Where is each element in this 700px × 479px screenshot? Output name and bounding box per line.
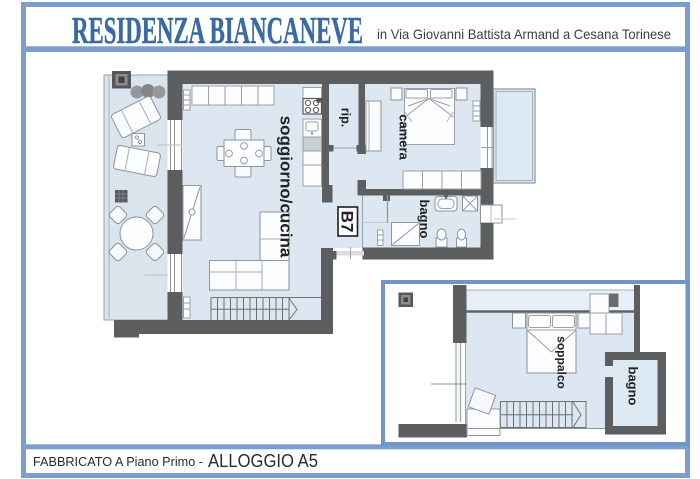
svg-text:bagno: bagno xyxy=(626,367,641,406)
svg-text:RESIDENZA BIANCANEVE: RESIDENZA BIANCANEVE xyxy=(72,10,363,52)
svg-text:ALLOGGIO A5: ALLOGGIO A5 xyxy=(208,451,318,471)
svg-text:camera: camera xyxy=(397,114,412,160)
svg-text:rip.: rip. xyxy=(339,108,353,127)
svg-text:soggiorno/cucina: soggiorno/cucina xyxy=(277,116,296,258)
svg-text:B7: B7 xyxy=(338,211,357,233)
svg-text:soppalco: soppalco xyxy=(555,336,569,389)
svg-text:FABBRICATO A Piano Primo -: FABBRICATO A Piano Primo - xyxy=(33,454,203,469)
svg-text:in Via Giovanni Battista Arman: in Via Giovanni Battista Armand a Cesana… xyxy=(377,26,671,42)
